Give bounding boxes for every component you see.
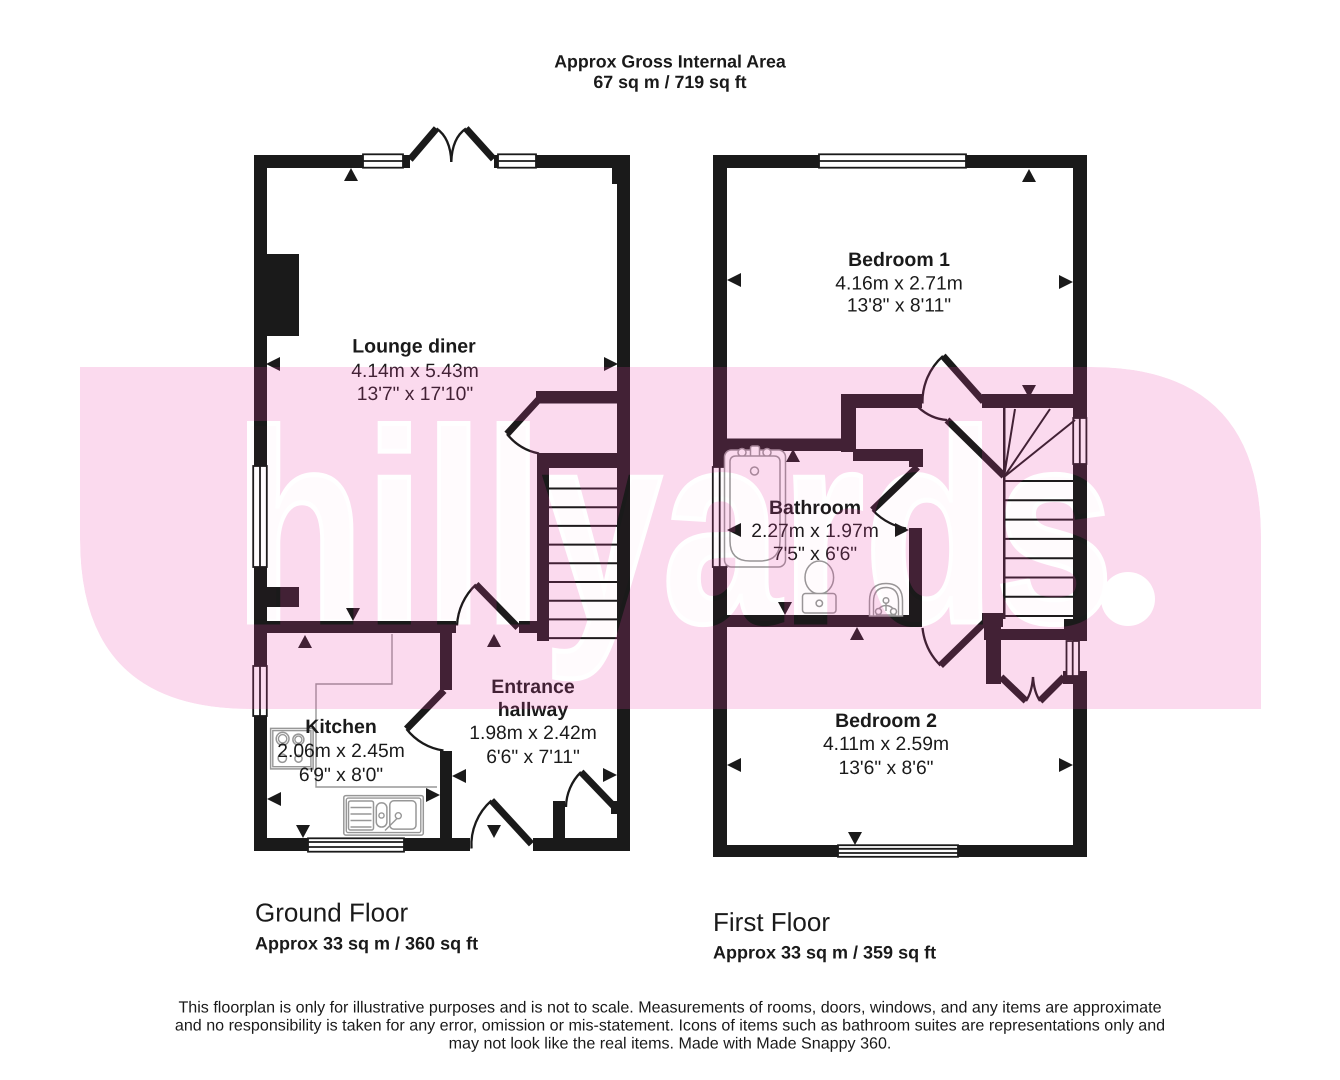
svg-text:This floorplan is only for ill: This floorplan is only for illustrative …	[178, 999, 1161, 1017]
svg-text:13'6" x 8'6": 13'6" x 8'6"	[838, 758, 933, 779]
svg-text:Lounge diner: Lounge diner	[352, 336, 476, 358]
svg-text:6'9" x 8'0": 6'9" x 8'0"	[299, 765, 383, 786]
svg-text:1.98m x 2.42m: 1.98m x 2.42m	[469, 723, 597, 744]
svg-text:4.11m x 2.59m: 4.11m x 2.59m	[823, 734, 949, 755]
svg-text:may not look like the real ite: may not look like the real items. Made w…	[449, 1035, 892, 1053]
svg-text:Kitchen: Kitchen	[305, 716, 377, 738]
svg-text:4.16m x 2.71m: 4.16m x 2.71m	[835, 274, 963, 295]
svg-text:Approx 33 sq m / 360 sq ft: Approx 33 sq m / 360 sq ft	[255, 934, 478, 954]
svg-text:13'8" x 8'11": 13'8" x 8'11"	[847, 296, 951, 317]
svg-text:67 sq m / 719 sq ft: 67 sq m / 719 sq ft	[593, 72, 746, 92]
svg-text:6'6" x 7'11": 6'6" x 7'11"	[486, 747, 580, 768]
svg-text:First Floor: First Floor	[713, 907, 830, 937]
svg-text:Ground Floor: Ground Floor	[255, 898, 409, 928]
svg-text:and no responsibility is taken: and no responsibility is taken for any e…	[175, 1017, 1165, 1035]
svg-text:Bedroom 2: Bedroom 2	[835, 710, 937, 732]
svg-text:Bedroom 1: Bedroom 1	[848, 249, 950, 271]
svg-text:Approx Gross Internal Area: Approx Gross Internal Area	[554, 52, 786, 72]
svg-text:Approx 33 sq m / 359 sq ft: Approx 33 sq m / 359 sq ft	[713, 943, 936, 963]
svg-text:2.06m x 2.45m: 2.06m x 2.45m	[277, 741, 405, 762]
